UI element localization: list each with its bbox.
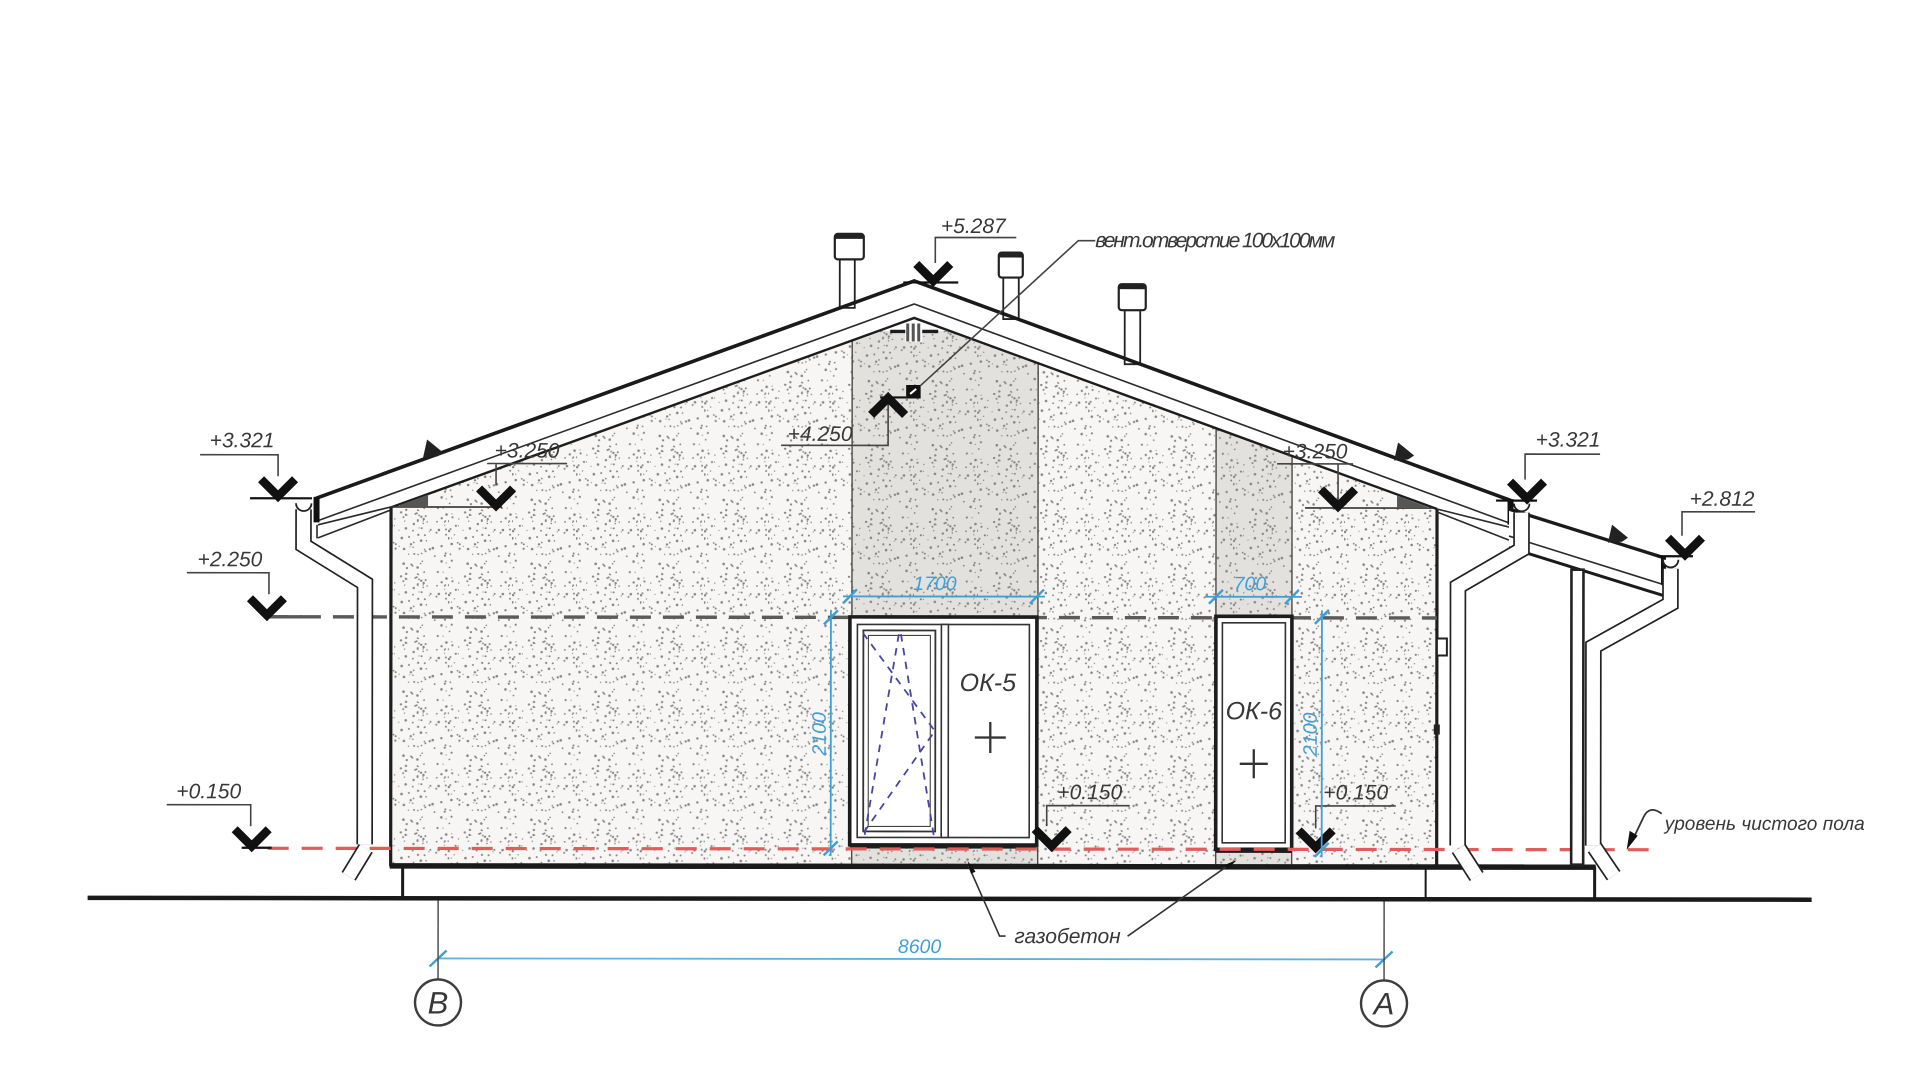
svg-text:вент.отверстие 100х100мм: вент.отверстие 100х100мм [1095, 229, 1335, 252]
svg-text:+0.150: +0.150 [1323, 781, 1388, 804]
svg-text:ОК-5: ОК-5 [960, 669, 1017, 697]
svg-text:+2.250: +2.250 [198, 548, 263, 571]
svg-text:+3.321: +3.321 [1536, 429, 1601, 452]
svg-text:700: 700 [1234, 573, 1267, 595]
svg-text:+5.287: +5.287 [941, 215, 1007, 238]
svg-text:+3.250: +3.250 [1283, 440, 1348, 463]
svg-text:+3.250: +3.250 [495, 440, 560, 463]
svg-text:газобетон: газобетон [1014, 925, 1121, 948]
svg-text:+0.150: +0.150 [1057, 781, 1122, 804]
svg-text:+3.321: +3.321 [210, 429, 275, 452]
svg-text:уровень чистого пола: уровень чистого пола [1663, 814, 1865, 835]
svg-text:+4.250: +4.250 [788, 423, 853, 446]
svg-text:ОК-6: ОК-6 [1226, 697, 1283, 725]
svg-text:А: А [1372, 986, 1395, 1021]
svg-text:8600: 8600 [898, 936, 942, 958]
svg-text:1700: 1700 [913, 573, 957, 595]
svg-text:2100: 2100 [809, 712, 831, 757]
svg-text:2100: 2100 [1300, 713, 1322, 758]
svg-text:+2.812: +2.812 [1690, 488, 1755, 511]
svg-text:+0.150: +0.150 [176, 780, 241, 803]
svg-text:В: В [428, 985, 449, 1020]
